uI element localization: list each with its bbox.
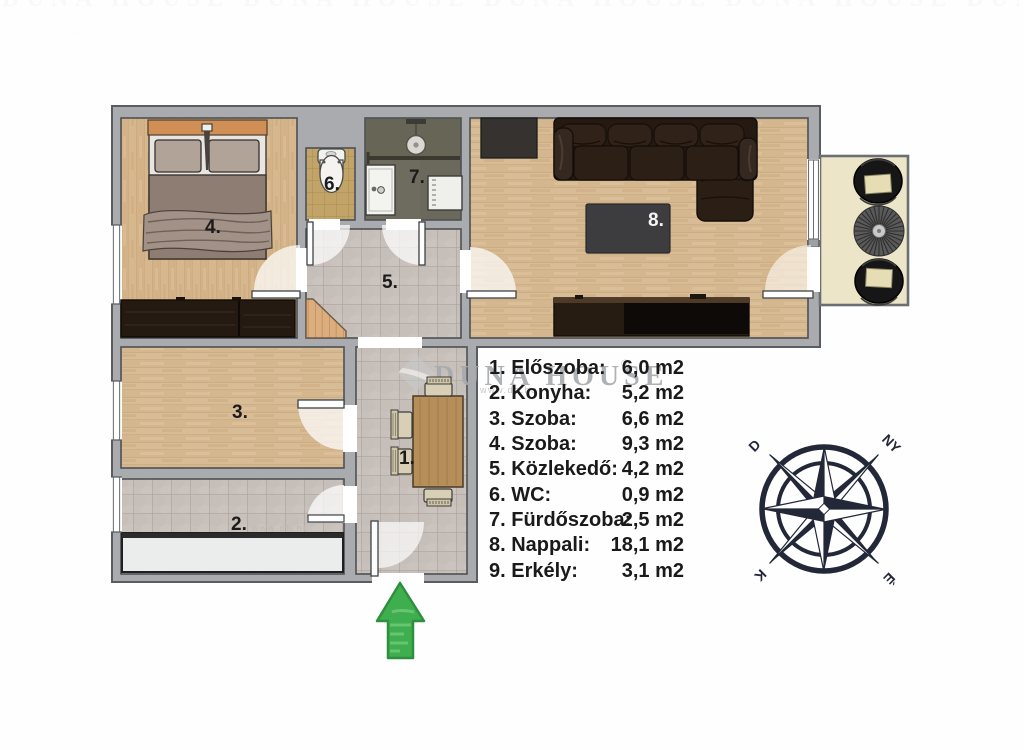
svg-text:5. Közlekedő:: 5. Közlekedő: [489, 458, 618, 480]
svg-text:www.dh.hu: www.dh.hu [251, 523, 310, 533]
svg-text:1.: 1. [399, 448, 415, 469]
svg-text:5,2 m2: 5,2 m2 [622, 382, 684, 404]
svg-text:8.: 8. [648, 210, 664, 231]
svg-text:2,5 m2: 2,5 m2 [622, 509, 684, 531]
svg-text:8. Nappali:: 8. Nappali: [489, 534, 590, 556]
svg-text:7. Fürdőszoba:: 7. Fürdőszoba: [489, 509, 631, 531]
svg-text:9,3 m2: 9,3 m2 [622, 433, 684, 455]
svg-text:3. Szoba:: 3. Szoba: [489, 408, 577, 430]
svg-text:4,2 m2: 4,2 m2 [622, 458, 684, 480]
svg-text:2. Konyha:: 2. Konyha: [489, 382, 591, 404]
svg-text:18,1 m2: 18,1 m2 [611, 534, 684, 556]
svg-text:DUNA HOUSE DUNA HOUSE DUNA HOU: DUNA HOUSE DUNA HOUSE DUNA HOUSE DUNA HO… [2, 0, 1024, 12]
svg-text:9. Erkély:: 9. Erkély: [489, 560, 578, 582]
svg-text:6,6 m2: 6,6 m2 [622, 408, 684, 430]
svg-text:4. Szoba:: 4. Szoba: [489, 433, 577, 455]
svg-text:6.: 6. [324, 174, 340, 195]
svg-text:www.dh.hu: www.dh.hu [30, 28, 83, 38]
svg-text:7.: 7. [409, 167, 425, 188]
svg-text:5.: 5. [382, 272, 398, 293]
svg-text:4.: 4. [205, 217, 221, 238]
svg-text:3.: 3. [232, 402, 248, 423]
svg-text:3,1 m2: 3,1 m2 [622, 560, 684, 582]
svg-text:0,9 m2: 0,9 m2 [622, 484, 684, 506]
svg-text:2.: 2. [231, 514, 247, 535]
svg-text:6,0 m2: 6,0 m2 [622, 357, 684, 379]
svg-text:1. Előszoba:: 1. Előszoba: [489, 357, 606, 379]
svg-text:6. WC:: 6. WC: [489, 484, 551, 506]
